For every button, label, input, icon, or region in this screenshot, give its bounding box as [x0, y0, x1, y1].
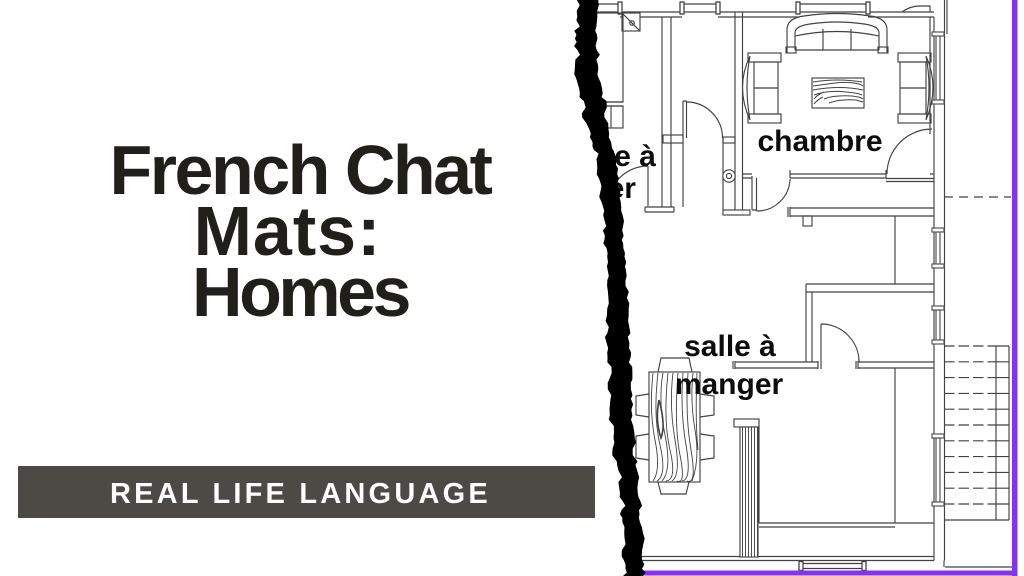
svg-text:manger: manger: [675, 368, 784, 401]
svg-text:chambre: chambre: [757, 125, 882, 158]
svg-text:salle à: salle à: [684, 330, 776, 363]
